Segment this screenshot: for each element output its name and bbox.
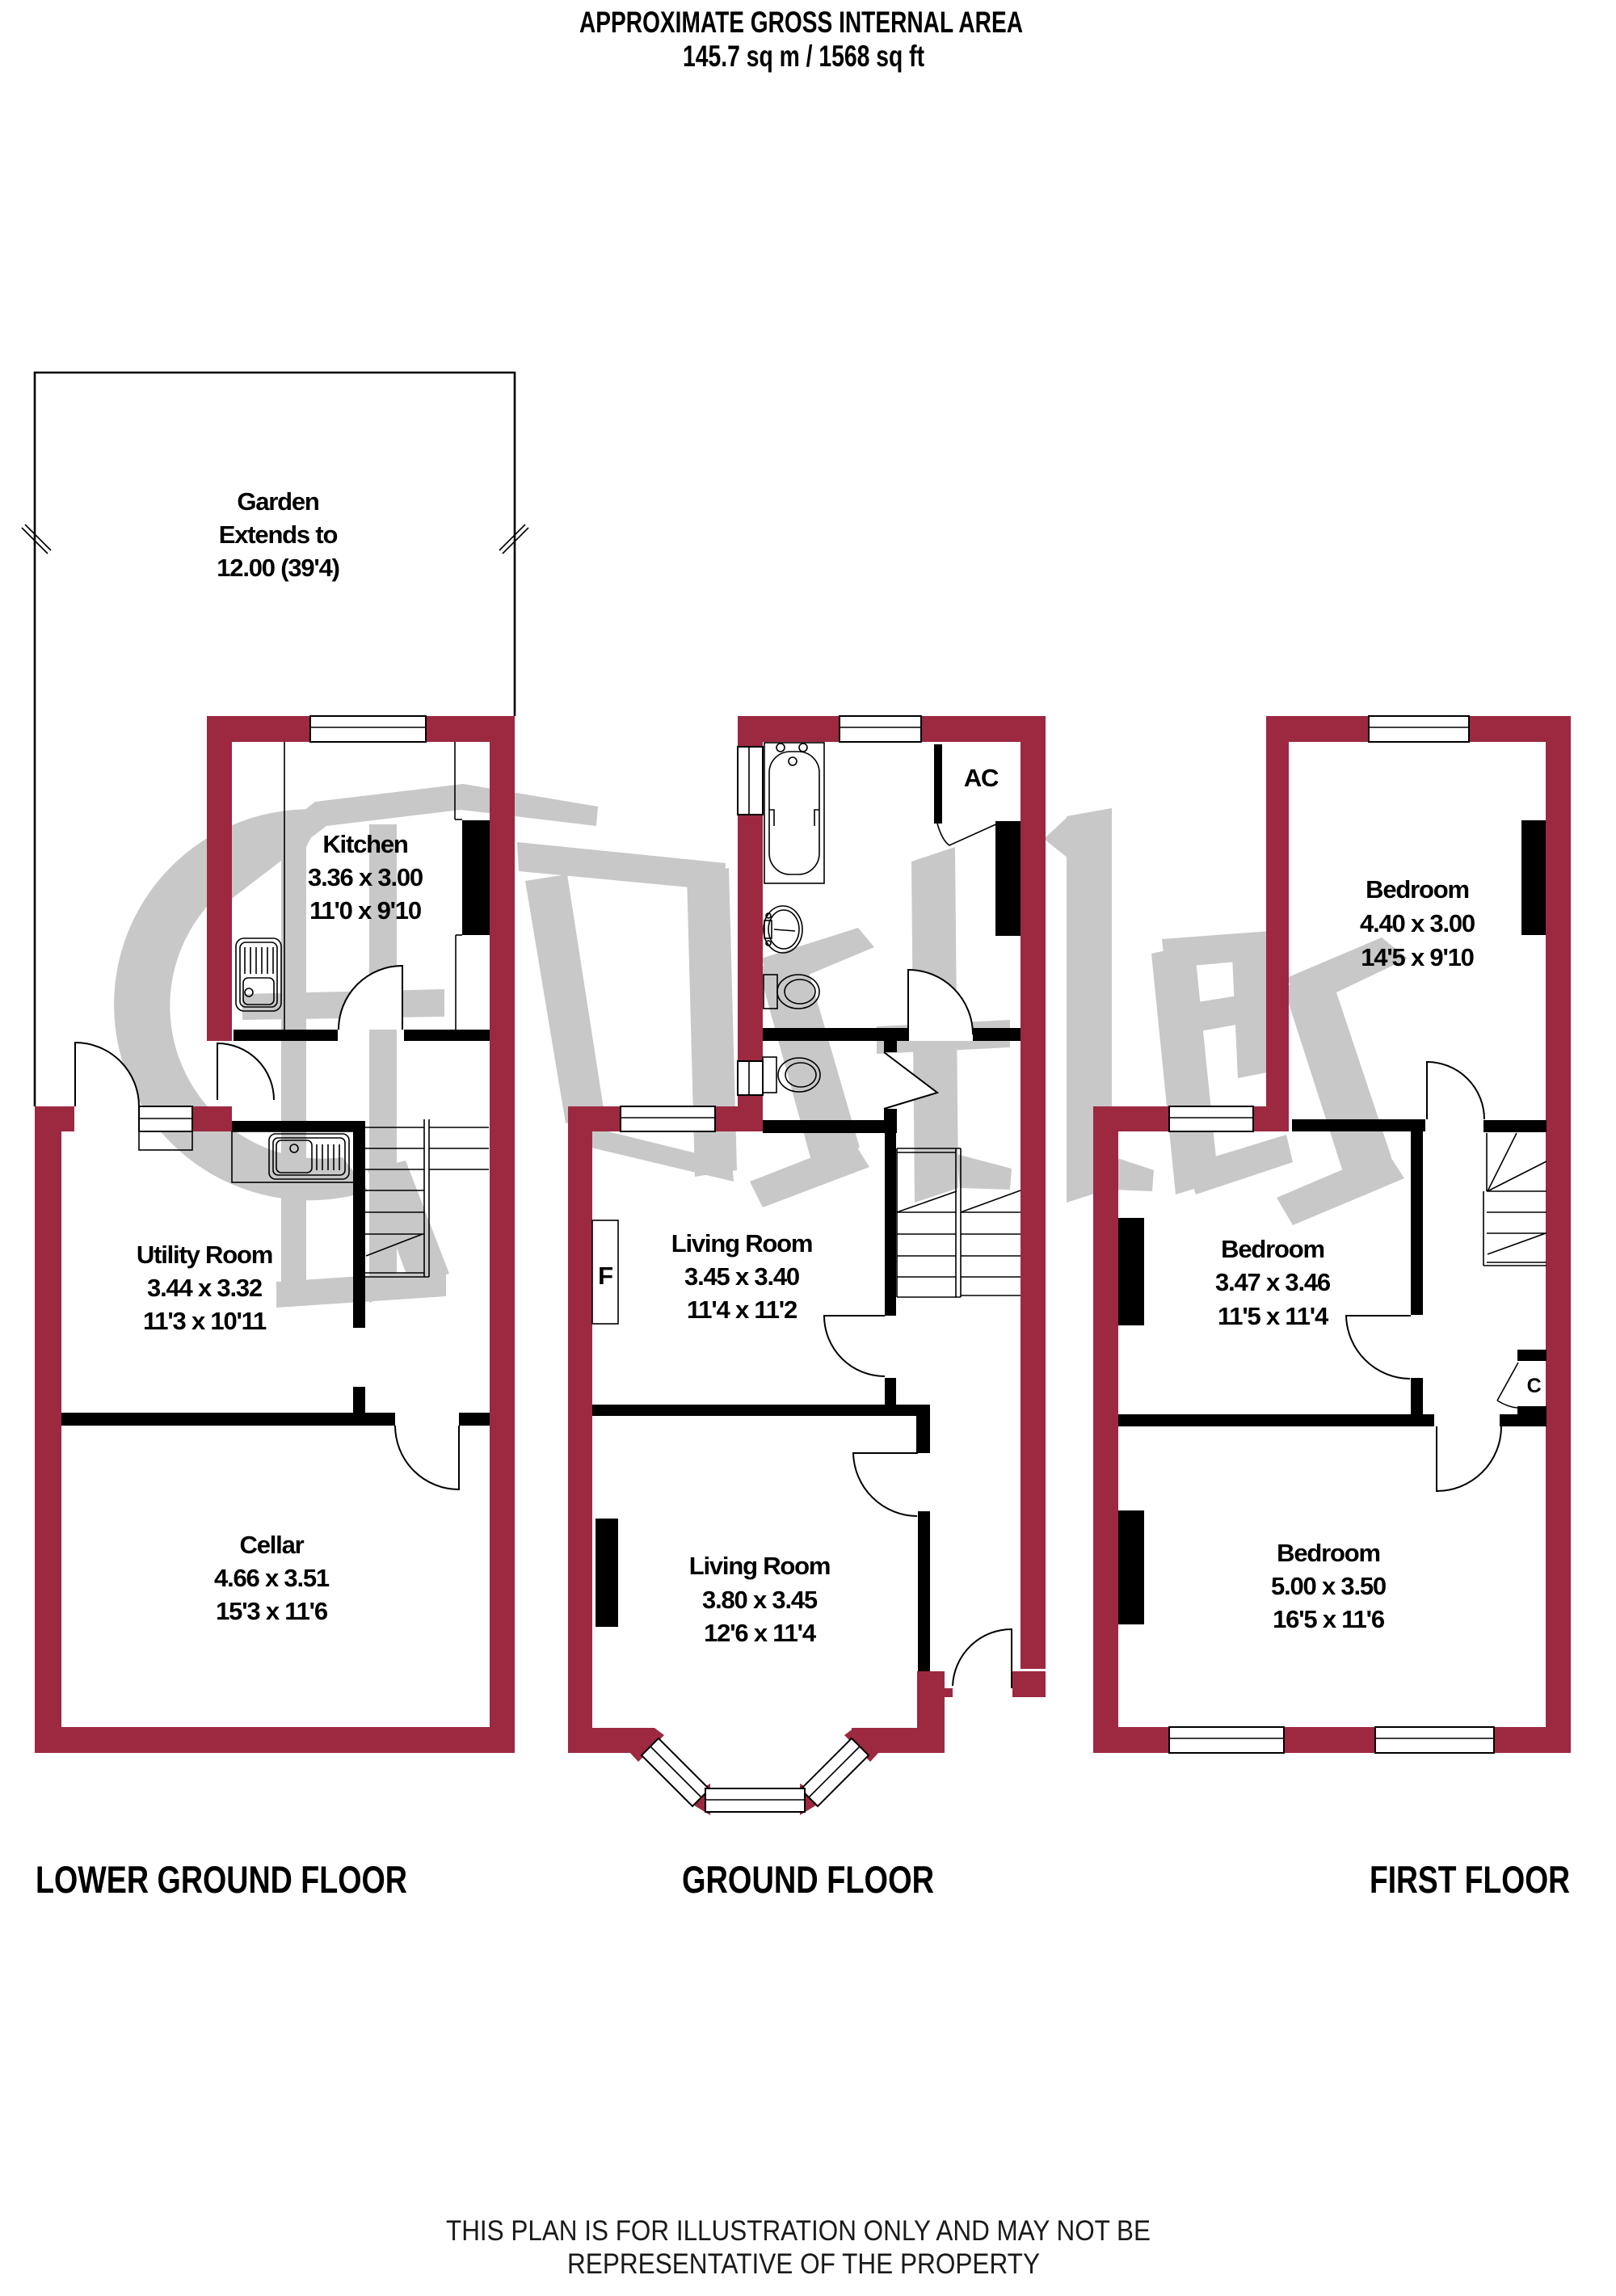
- svg-text:Cellar: Cellar: [240, 1531, 305, 1559]
- svg-text:3.47 x 3.46: 3.47 x 3.46: [1215, 1268, 1331, 1296]
- svg-text:11'4 x 11'2: 11'4 x 11'2: [687, 1295, 797, 1324]
- svg-text:11'5 x 11'4: 11'5 x 11'4: [1218, 1302, 1329, 1330]
- svg-text:5.00 x 3.50: 5.00 x 3.50: [1271, 1572, 1386, 1600]
- svg-text:REPRESENTATIVE OF THE PROPERTY: REPRESENTATIVE OF THE PROPERTY: [567, 2248, 1040, 2280]
- svg-text:Utility Room: Utility Room: [137, 1241, 272, 1269]
- svg-text:F: F: [598, 1262, 612, 1290]
- svg-text:AC: AC: [964, 764, 999, 792]
- svg-text:3.80 x 3.45: 3.80 x 3.45: [702, 1586, 818, 1614]
- svg-text:Extends to: Extends to: [219, 520, 338, 549]
- svg-text:16'5 x 11'6: 16'5 x 11'6: [1273, 1605, 1385, 1633]
- svg-text:Living Room: Living Room: [689, 1552, 831, 1580]
- svg-text:Living Room: Living Room: [671, 1229, 813, 1258]
- svg-text:14'5 x 9'10: 14'5 x 9'10: [1361, 943, 1473, 971]
- svg-text:4.40 x 3.00: 4.40 x 3.00: [1360, 909, 1475, 937]
- svg-text:APPROXIMATE GROSS INTERNAL ARE: APPROXIMATE GROSS INTERNAL AREA: [579, 6, 1023, 39]
- svg-text:15'3 x 11'6: 15'3 x 11'6: [216, 1597, 328, 1625]
- svg-text:4.66 x 3.51: 4.66 x 3.51: [214, 1564, 330, 1592]
- svg-text:GROUND FLOOR: GROUND FLOOR: [682, 1858, 934, 1901]
- svg-text:3.45 x 3.40: 3.45 x 3.40: [684, 1262, 799, 1291]
- svg-text:C: C: [1527, 1375, 1542, 1397]
- svg-text:12'6 x 11'4: 12'6 x 11'4: [704, 1619, 817, 1647]
- svg-text:3.44 x 3.32: 3.44 x 3.32: [147, 1274, 262, 1302]
- svg-text:Bedroom: Bedroom: [1221, 1235, 1324, 1263]
- svg-text:145.7 sq m / 1568 sq ft: 145.7 sq m / 1568 sq ft: [683, 40, 924, 73]
- svg-text:11'0 x 9'10: 11'0 x 9'10: [309, 896, 421, 925]
- svg-text:3.36 x 3.00: 3.36 x 3.00: [308, 863, 423, 891]
- svg-text:Kitchen: Kitchen: [322, 830, 408, 858]
- svg-text:THIS PLAN IS FOR ILLUSTRATION: THIS PLAN IS FOR ILLUSTRATION ONLY AND M…: [446, 2215, 1151, 2247]
- svg-text:Garden: Garden: [237, 487, 319, 516]
- svg-text:FIRST FLOOR: FIRST FLOOR: [1370, 1858, 1570, 1901]
- svg-text:12.00 (39'4): 12.00 (39'4): [217, 554, 339, 582]
- svg-text:Bedroom: Bedroom: [1366, 875, 1469, 904]
- svg-text:LOWER GROUND FLOOR: LOWER GROUND FLOOR: [36, 1858, 407, 1901]
- svg-text:11'3 x 10'11: 11'3 x 10'11: [143, 1307, 267, 1335]
- svg-text:Bedroom: Bedroom: [1277, 1539, 1380, 1567]
